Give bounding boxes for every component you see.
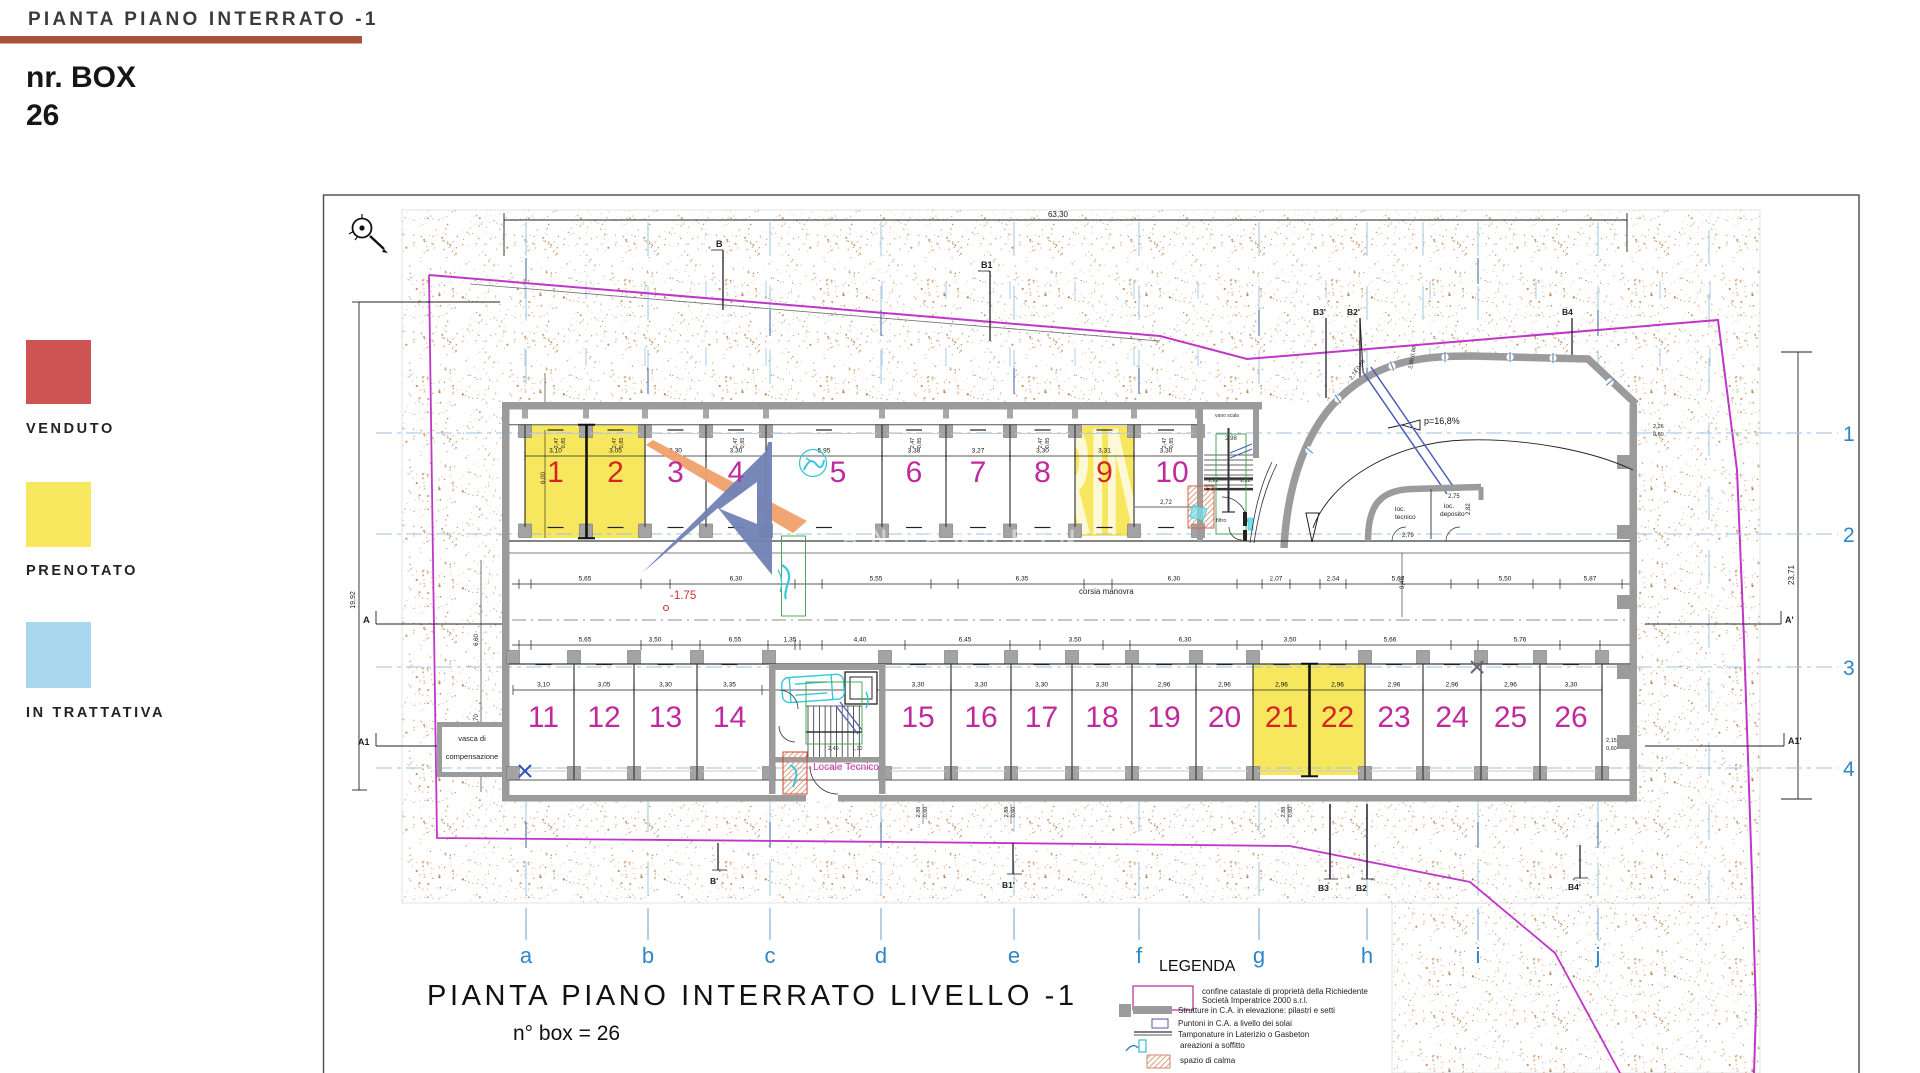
svg-text:3,50: 3,50 [649, 637, 662, 644]
svg-text:0,60: 0,60 [1653, 432, 1664, 438]
svg-text:13: 13 [649, 701, 682, 734]
svg-text:corsia manovra: corsia manovra [1079, 587, 1134, 596]
svg-text:19: 19 [1147, 701, 1180, 734]
svg-text:5,76: 5,76 [1514, 637, 1527, 644]
svg-text:23: 23 [1377, 701, 1410, 734]
svg-text:Puntoni in C.A. a livello dei: Puntoni in C.A. a livello dei solai [1178, 1019, 1292, 1028]
svg-text:9,40: 9,40 [1400, 577, 1406, 589]
svg-text:e: e [1008, 943, 1020, 968]
svg-text:7: 7 [970, 456, 987, 489]
svg-text:VENDUTO: VENDUTO [26, 421, 115, 437]
svg-text:B1': B1' [1002, 880, 1015, 890]
svg-text:3,27: 3,27 [972, 448, 985, 455]
svg-text:2,75: 2,75 [1448, 494, 1460, 500]
svg-text:26: 26 [26, 99, 59, 132]
svg-text:4: 4 [728, 456, 745, 489]
svg-text:3,30: 3,30 [1565, 682, 1578, 689]
svg-text:1: 1 [1843, 423, 1855, 446]
svg-text:2,47: 2,47 [910, 438, 916, 449]
svg-text:1,35: 1,35 [784, 637, 797, 644]
svg-text:nr. BOX: nr. BOX [26, 61, 136, 94]
svg-text:12: 12 [587, 701, 620, 734]
svg-text:3,05: 3,05 [598, 682, 611, 689]
svg-text:63,30: 63,30 [1048, 210, 1069, 219]
svg-text:confine catastale di proprietà: confine catastale di proprietà della Ric… [1202, 987, 1368, 996]
svg-text:18: 18 [1085, 701, 1118, 734]
svg-text:B3': B3' [1313, 307, 1326, 317]
svg-text:0,85: 0,85 [917, 438, 923, 449]
svg-text:f: f [1136, 943, 1143, 968]
svg-text:0,85: 0,85 [1169, 438, 1175, 449]
svg-text:0,60: 0,60 [1011, 807, 1017, 818]
svg-text:6,45: 6,45 [959, 637, 972, 644]
svg-text:23,71: 23,71 [1787, 564, 1796, 585]
svg-text:2: 2 [607, 456, 624, 489]
svg-text:3,30: 3,30 [659, 682, 672, 689]
svg-text:6,30: 6,30 [730, 576, 743, 583]
svg-text:loc.: loc. [1395, 506, 1405, 513]
svg-text:i: i [1476, 943, 1481, 968]
svg-text:c: c [765, 943, 776, 968]
svg-text:3,31: 3,31 [1098, 448, 1111, 455]
svg-text:2,96: 2,96 [1218, 682, 1231, 689]
svg-text:j: j [1595, 943, 1601, 968]
svg-text:4: 4 [1843, 758, 1855, 781]
svg-text:deposito: deposito [1440, 511, 1465, 518]
svg-text:20: 20 [1208, 701, 1241, 734]
svg-text:0,85: 0,85 [619, 438, 625, 449]
svg-text:3,50: 3,50 [1284, 637, 1297, 644]
svg-text:6,60: 6,60 [474, 634, 480, 646]
svg-text:a: a [520, 943, 533, 968]
svg-text:A1: A1 [358, 737, 370, 747]
svg-text:B: B [716, 239, 723, 249]
svg-text:2,82: 2,82 [1466, 503, 1472, 515]
svg-text:2,96: 2,96 [1446, 682, 1459, 689]
svg-text:0,85: 0,85 [561, 438, 567, 449]
svg-text:areazioni a soffitto: areazioni a soffitto [1180, 1041, 1245, 1050]
svg-text:2,96: 2,96 [1275, 682, 1288, 689]
svg-text:B4: B4 [1562, 307, 1573, 317]
svg-text:filtro: filtro [1216, 518, 1226, 524]
svg-text:3,30: 3,30 [1035, 682, 1048, 689]
svg-text:b: b [642, 943, 654, 968]
svg-text:B3: B3 [1318, 883, 1329, 893]
svg-text:ANTANDRIN: ANTANDRIN [1149, 554, 1392, 584]
svg-text:-1.75: -1.75 [670, 590, 696, 602]
svg-text:26: 26 [1554, 701, 1587, 734]
svg-text:6,00: 6,00 [541, 472, 547, 484]
svg-text:21: 21 [1265, 701, 1298, 734]
svg-text:A': A' [1785, 615, 1794, 625]
svg-text:2: 2 [1843, 524, 1855, 547]
svg-text:10: 10 [1155, 456, 1188, 489]
svg-text:11: 11 [528, 701, 559, 734]
svg-text:2,45: 2,45 [828, 746, 839, 752]
svg-text:0,60: 0,60 [1288, 807, 1294, 818]
svg-text:B': B' [710, 876, 718, 886]
svg-text:0,85: 0,85 [740, 438, 746, 449]
svg-text:25: 25 [1494, 701, 1527, 734]
svg-text:LEGENDA: LEGENDA [1159, 958, 1236, 975]
svg-text:B2: B2 [1356, 883, 1367, 893]
svg-text:3,30: 3,30 [975, 682, 988, 689]
svg-text:19,92: 19,92 [350, 591, 357, 609]
svg-text:6,35: 6,35 [1016, 576, 1029, 583]
svg-text:2,88: 2,88 [916, 807, 922, 818]
svg-text:3,30: 3,30 [1096, 682, 1109, 689]
svg-text:p=16,8%: p=16,8% [1424, 416, 1460, 426]
svg-text:14: 14 [713, 701, 746, 734]
svg-text:3: 3 [667, 456, 684, 489]
svg-text:2,96: 2,96 [1158, 682, 1171, 689]
svg-text:IN TRATTATIVA: IN TRATTATIVA [26, 705, 165, 721]
svg-text:5,65: 5,65 [579, 576, 592, 583]
svg-text:2,98: 2,98 [1225, 436, 1237, 442]
svg-text:Locale Tecnico: Locale Tecnico [813, 762, 879, 773]
svg-text:2,88: 2,88 [1004, 807, 1010, 818]
svg-text:Società Imperatrice 2000 s.r.l: Società Imperatrice 2000 s.r.l. [1202, 996, 1308, 1005]
svg-text:A1': A1' [1788, 736, 1802, 746]
svg-text:4,40: 4,40 [854, 637, 867, 644]
svg-text:2,26: 2,26 [1653, 424, 1664, 430]
svg-text:n° box = 26: n° box = 26 [513, 1022, 620, 1045]
svg-text:B4': B4' [1568, 882, 1581, 892]
svg-text:16: 16 [964, 701, 997, 734]
svg-text:2,72: 2,72 [1160, 500, 1172, 506]
svg-text:B2': B2' [1347, 307, 1360, 317]
svg-text:5,65: 5,65 [579, 637, 592, 644]
svg-text:0,60: 0,60 [923, 807, 929, 818]
svg-text:PRENOTATO: PRENOTATO [26, 563, 138, 579]
svg-text:1,22: 1,22 [1240, 478, 1251, 484]
svg-text:spazio di calma: spazio di calma [1180, 1056, 1236, 1065]
svg-text:2,96: 2,96 [1388, 682, 1401, 689]
svg-text:compensazione: compensazione [446, 752, 499, 761]
svg-text:h: h [1361, 943, 1373, 968]
svg-text:Strutture in C.A. in elevazion: Strutture in C.A. in elevazione: pilastr… [1178, 1006, 1335, 1015]
svg-text:3,50: 3,50 [1069, 637, 1082, 644]
svg-text:tecnico: tecnico [1395, 514, 1416, 521]
svg-text:Tamponature in Laterizio o Gas: Tamponature in Laterizio o Gasbeton [1178, 1030, 1309, 1039]
svg-text:1: 1 [547, 456, 564, 489]
svg-text:2,47: 2,47 [612, 438, 618, 449]
svg-text:2,47: 2,47 [554, 438, 560, 449]
svg-text:9: 9 [1096, 456, 1113, 489]
svg-text:22: 22 [1321, 701, 1354, 734]
svg-text:2,88: 2,88 [1281, 807, 1287, 818]
svg-text:17: 17 [1025, 701, 1058, 734]
svg-text:2,47: 2,47 [1038, 438, 1044, 449]
svg-text:B1: B1 [981, 260, 993, 270]
svg-text:A: A [363, 615, 370, 626]
svg-text:2,47: 2,47 [1162, 438, 1168, 449]
svg-text:3,30: 3,30 [912, 682, 925, 689]
svg-text:3,35: 3,35 [723, 682, 736, 689]
svg-text:0,60: 0,60 [1606, 746, 1617, 752]
svg-text:6: 6 [906, 456, 923, 489]
svg-text:1,22: 1,22 [852, 746, 863, 752]
svg-text:PIANTA PIANO INTERRATO -1: PIANTA PIANO INTERRATO -1 [28, 9, 379, 30]
svg-text:5,50: 5,50 [1499, 576, 1512, 583]
svg-text:6,30: 6,30 [1179, 637, 1192, 644]
svg-text:24: 24 [1435, 701, 1468, 734]
svg-text:ANTANDRIN: ANTANDRIN [842, 525, 1088, 550]
svg-text:0,85: 0,85 [1045, 438, 1051, 449]
svg-text:5,55: 5,55 [870, 576, 883, 583]
svg-text:5,87: 5,87 [1584, 576, 1597, 583]
svg-text:g: g [1253, 943, 1265, 968]
svg-text:2,96: 2,96 [1331, 682, 1344, 689]
svg-text:vano scala: vano scala [1215, 413, 1239, 419]
svg-text:2,15: 2,15 [1606, 738, 1617, 744]
svg-text:3,10: 3,10 [537, 682, 550, 689]
svg-text:PIANTA PIANO INTERRATO LIVELLO: PIANTA PIANO INTERRATO LIVELLO -1 [427, 980, 1078, 1012]
svg-text:loc.: loc. [1444, 503, 1454, 510]
svg-text:2,79: 2,79 [1402, 533, 1414, 539]
svg-text:vasca di: vasca di [458, 734, 486, 743]
svg-text:d: d [875, 943, 887, 968]
svg-text:3: 3 [1843, 657, 1855, 680]
svg-text:8: 8 [1034, 456, 1051, 489]
svg-text:15: 15 [901, 701, 934, 734]
svg-text:2,47: 2,47 [733, 438, 739, 449]
svg-text:5: 5 [830, 456, 847, 489]
svg-text:1,22: 1,22 [1208, 478, 1219, 484]
svg-text:6,55: 6,55 [729, 637, 742, 644]
svg-text:2,96: 2,96 [1504, 682, 1517, 689]
svg-text:5,66: 5,66 [1384, 637, 1397, 644]
